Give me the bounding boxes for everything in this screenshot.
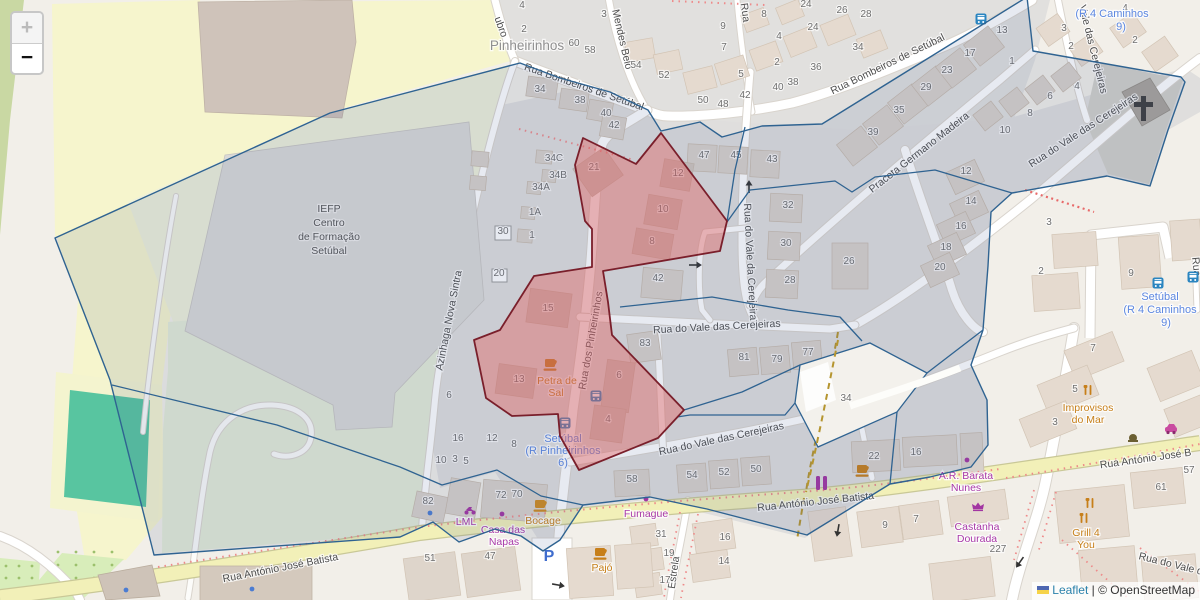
svg-text:36: 36	[810, 62, 822, 73]
svg-text:P: P	[544, 548, 555, 565]
svg-text:42: 42	[739, 90, 751, 101]
svg-text:52: 52	[658, 70, 670, 81]
svg-text:(R 4 Caminhos: (R 4 Caminhos	[1123, 304, 1197, 316]
svg-text:24: 24	[800, 0, 812, 10]
svg-text:Fumague: Fumague	[624, 508, 669, 520]
svg-text:2: 2	[1068, 41, 1074, 52]
svg-text:16: 16	[719, 532, 731, 543]
svg-text:19: 19	[663, 548, 675, 559]
svg-text:61: 61	[1155, 482, 1167, 493]
svg-text:Grill 4: Grill 4	[1072, 527, 1100, 539]
svg-text:Pajó: Pajó	[591, 562, 612, 574]
svg-text:9: 9	[882, 520, 888, 531]
svg-text:Improvisos: Improvisos	[1063, 402, 1114, 414]
svg-text:3: 3	[1046, 217, 1052, 228]
svg-text:34: 34	[852, 42, 864, 53]
svg-text:Castanha: Castanha	[955, 521, 1000, 533]
svg-text:26: 26	[836, 5, 848, 16]
svg-text:2: 2	[1038, 266, 1044, 277]
svg-text:57: 57	[1183, 465, 1195, 476]
svg-text:9): 9)	[1116, 21, 1126, 33]
svg-text:50: 50	[697, 95, 709, 106]
svg-text:7: 7	[913, 514, 919, 525]
svg-text:58: 58	[584, 45, 596, 56]
svg-text:38: 38	[787, 77, 799, 88]
svg-text:2: 2	[1132, 35, 1138, 46]
svg-text:7: 7	[721, 42, 727, 53]
svg-text:do Mar: do Mar	[1072, 414, 1105, 426]
svg-text:Setúbal: Setúbal	[1141, 291, 1178, 303]
svg-text:48: 48	[717, 99, 729, 110]
svg-text:Napas: Napas	[489, 536, 519, 548]
svg-text:47: 47	[484, 551, 496, 562]
svg-text:Pinheirinhos: Pinheirinhos	[490, 38, 565, 53]
svg-text:28: 28	[860, 9, 872, 20]
svg-text:2: 2	[521, 24, 527, 35]
svg-text:8: 8	[761, 9, 767, 20]
svg-text:9: 9	[720, 21, 726, 32]
svg-text:You: You	[1077, 539, 1095, 551]
svg-text:(R 4 Caminhos: (R 4 Caminhos	[1075, 8, 1149, 20]
svg-text:2: 2	[774, 57, 780, 68]
svg-text:14: 14	[718, 556, 730, 567]
svg-text:5: 5	[1072, 384, 1078, 395]
svg-text:51: 51	[424, 553, 436, 564]
svg-text:4: 4	[776, 31, 782, 42]
svg-text:4: 4	[519, 0, 525, 11]
svg-text:Dourada: Dourada	[957, 533, 997, 545]
svg-text:24: 24	[807, 22, 819, 33]
svg-text:7: 7	[1090, 343, 1096, 354]
svg-text:3: 3	[1061, 23, 1067, 34]
svg-text:Nunes: Nunes	[951, 482, 981, 494]
svg-text:9): 9)	[1161, 317, 1171, 329]
svg-text:34: 34	[840, 393, 852, 404]
svg-text:3: 3	[1052, 417, 1058, 428]
svg-text:5: 5	[738, 69, 744, 80]
svg-text:9: 9	[1128, 268, 1134, 279]
svg-text:40: 40	[772, 82, 784, 93]
svg-text:3: 3	[601, 9, 607, 20]
svg-text:60: 60	[568, 38, 580, 49]
svg-text:17: 17	[659, 575, 671, 586]
svg-text:227: 227	[990, 544, 1007, 555]
svg-text:54: 54	[630, 60, 642, 71]
svg-text:31: 31	[655, 529, 667, 540]
